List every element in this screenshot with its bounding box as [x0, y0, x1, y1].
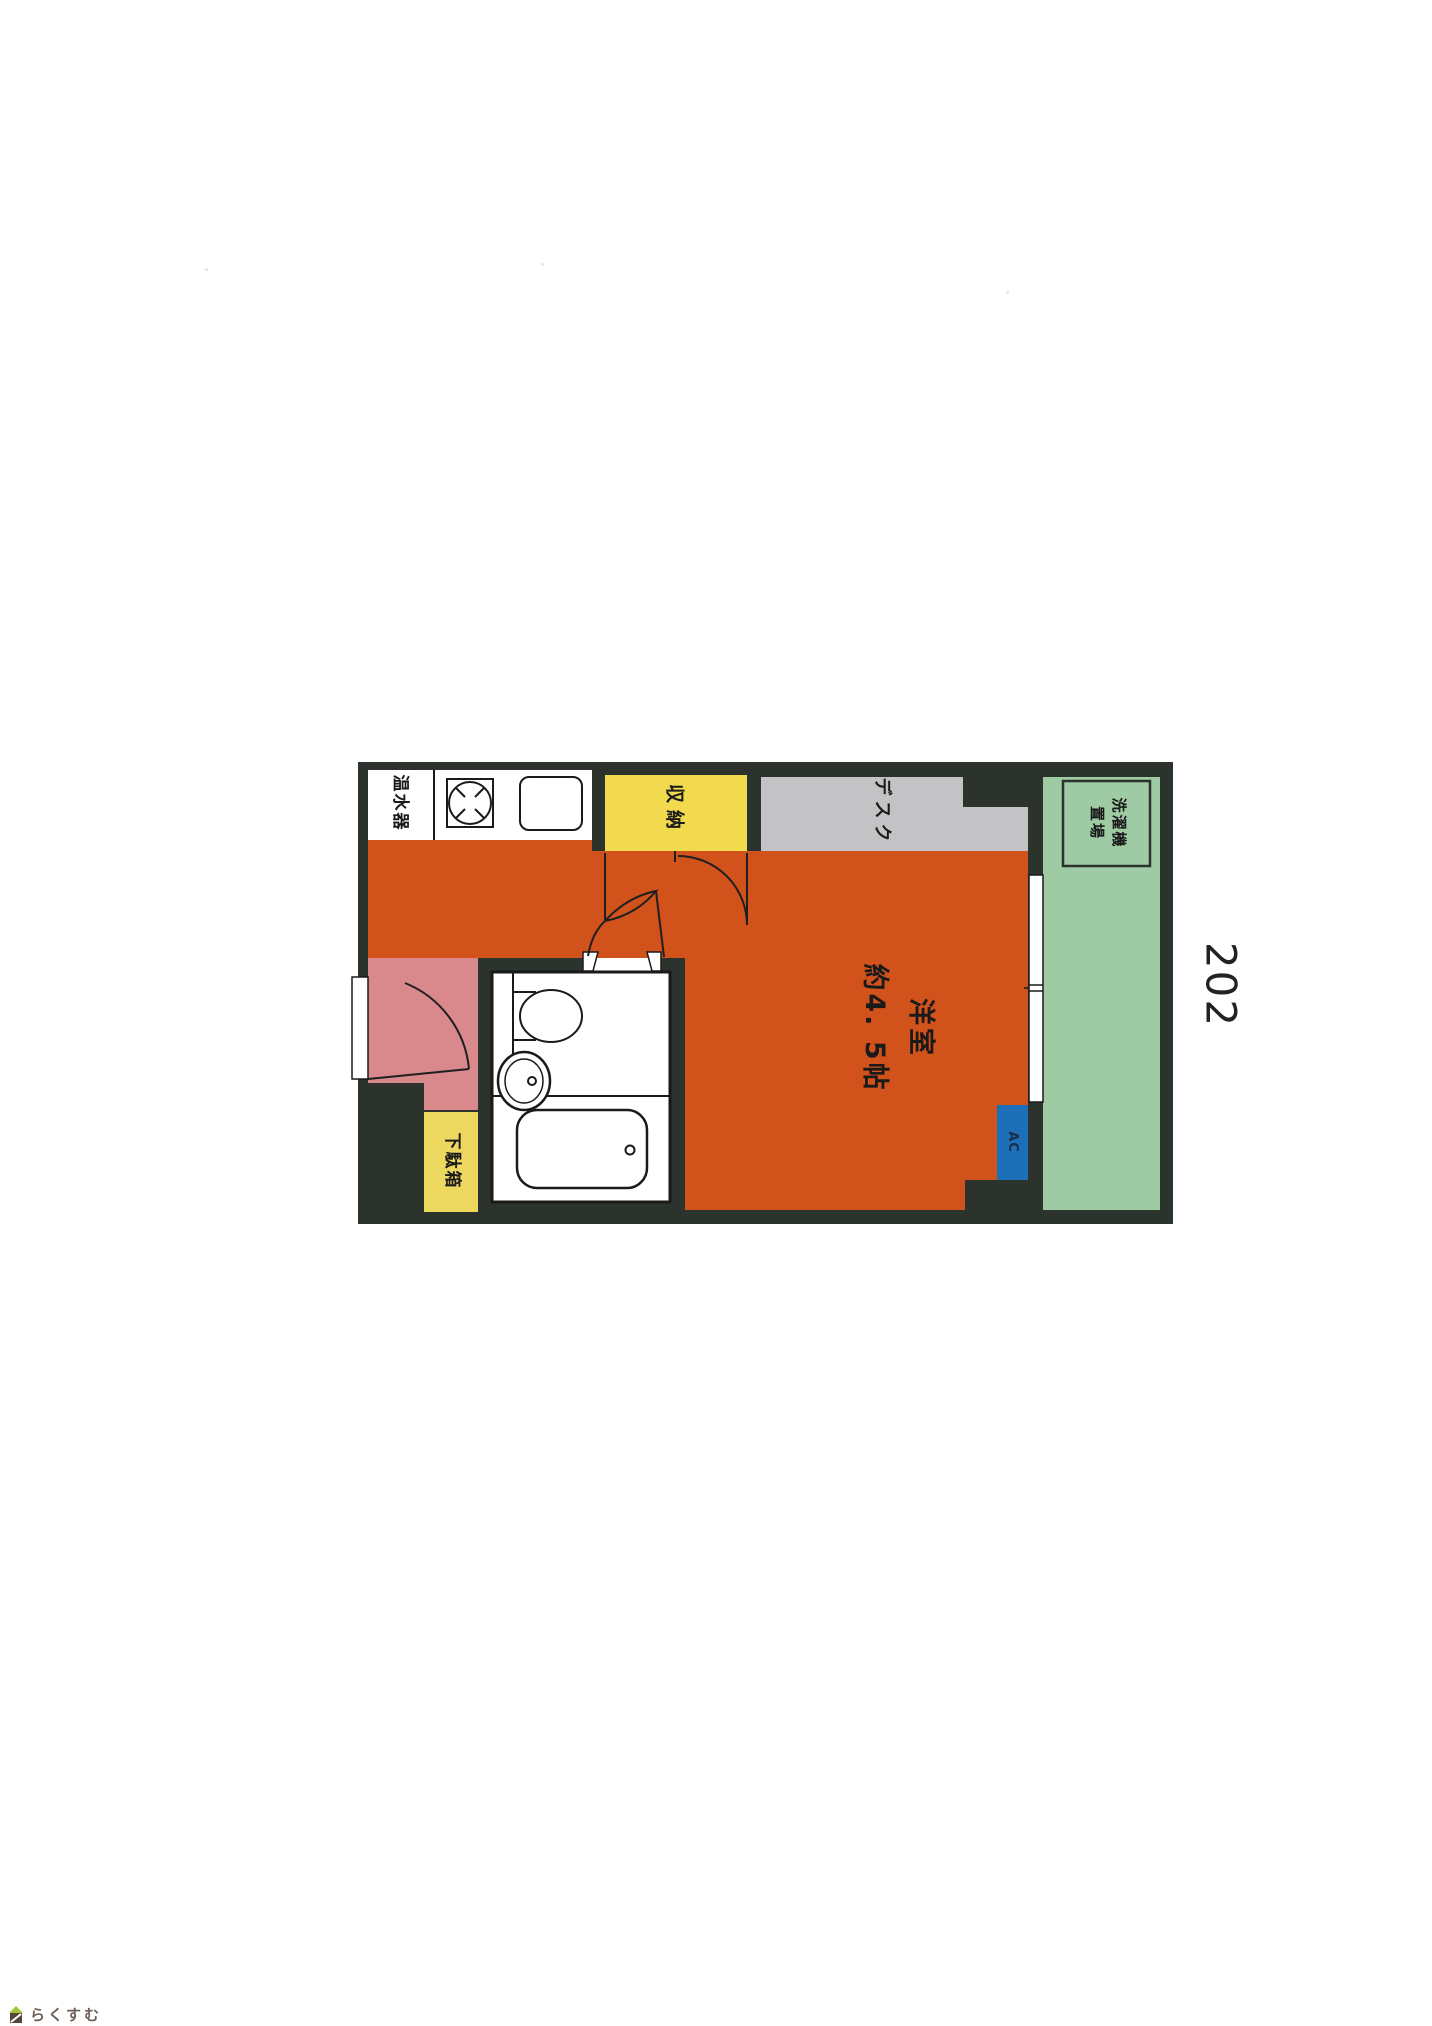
bathtub [517, 1110, 647, 1188]
shoe-cabinet-label: 下駄箱 [438, 1133, 464, 1190]
ac-label: AC [1002, 1131, 1022, 1153]
closet-label: 収納 [660, 784, 689, 836]
unit-number: 202 [1197, 942, 1246, 1028]
bathroom-sink [498, 1052, 550, 1110]
water-heater-label: 温水器 [386, 775, 412, 832]
washer-area-label: 洗濯機 置場 [1085, 797, 1129, 848]
house-icon [8, 2005, 24, 2024]
bathroom-door [583, 891, 664, 972]
desk-label: デスク [869, 778, 896, 847]
logo-text: らくすむ [30, 2004, 102, 2025]
scan-speck [205, 268, 208, 271]
stove-burner [447, 779, 493, 827]
scanned-floorplan-page: 温水器 収納 デスク 洗濯機 置場 洋室 約4. 5帖 下駄箱 AC 202 ら… [0, 0, 1432, 2026]
toilet [513, 990, 582, 1042]
scan-speck [1006, 291, 1009, 294]
kitchen-sink [520, 777, 582, 830]
main-room-label: 洋室 約4. 5帖 [851, 963, 943, 1092]
rakusumu-logo: らくすむ [8, 2004, 102, 2025]
scan-speck [541, 263, 544, 266]
window [1024, 875, 1043, 1102]
entry-door [352, 977, 469, 1079]
